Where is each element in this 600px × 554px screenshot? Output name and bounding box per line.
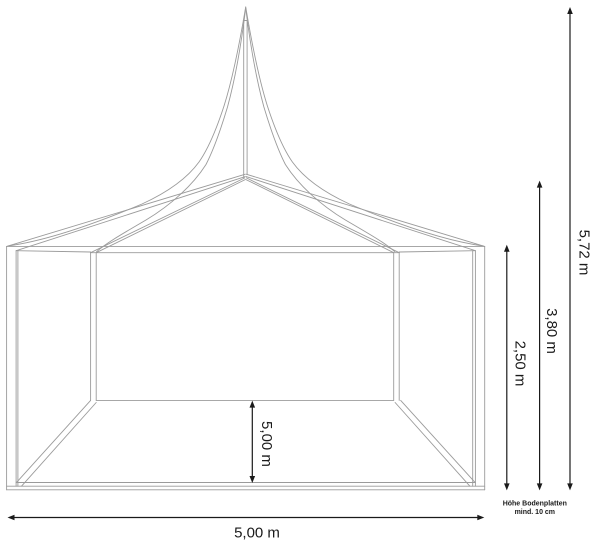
svg-text:5,00 m: 5,00 m (258, 421, 275, 467)
svg-text:5,72 m: 5,72 m (576, 230, 593, 276)
svg-text:mind. 10 cm: mind. 10 cm (515, 509, 555, 516)
svg-text:5,00 m: 5,00 m (234, 525, 280, 542)
svg-text:Höhe Bodenplatten: Höhe Bodenplatten (503, 501, 567, 508)
svg-text:2,50 m: 2,50 m (512, 341, 529, 387)
svg-text:3,80 m: 3,80 m (543, 308, 560, 354)
